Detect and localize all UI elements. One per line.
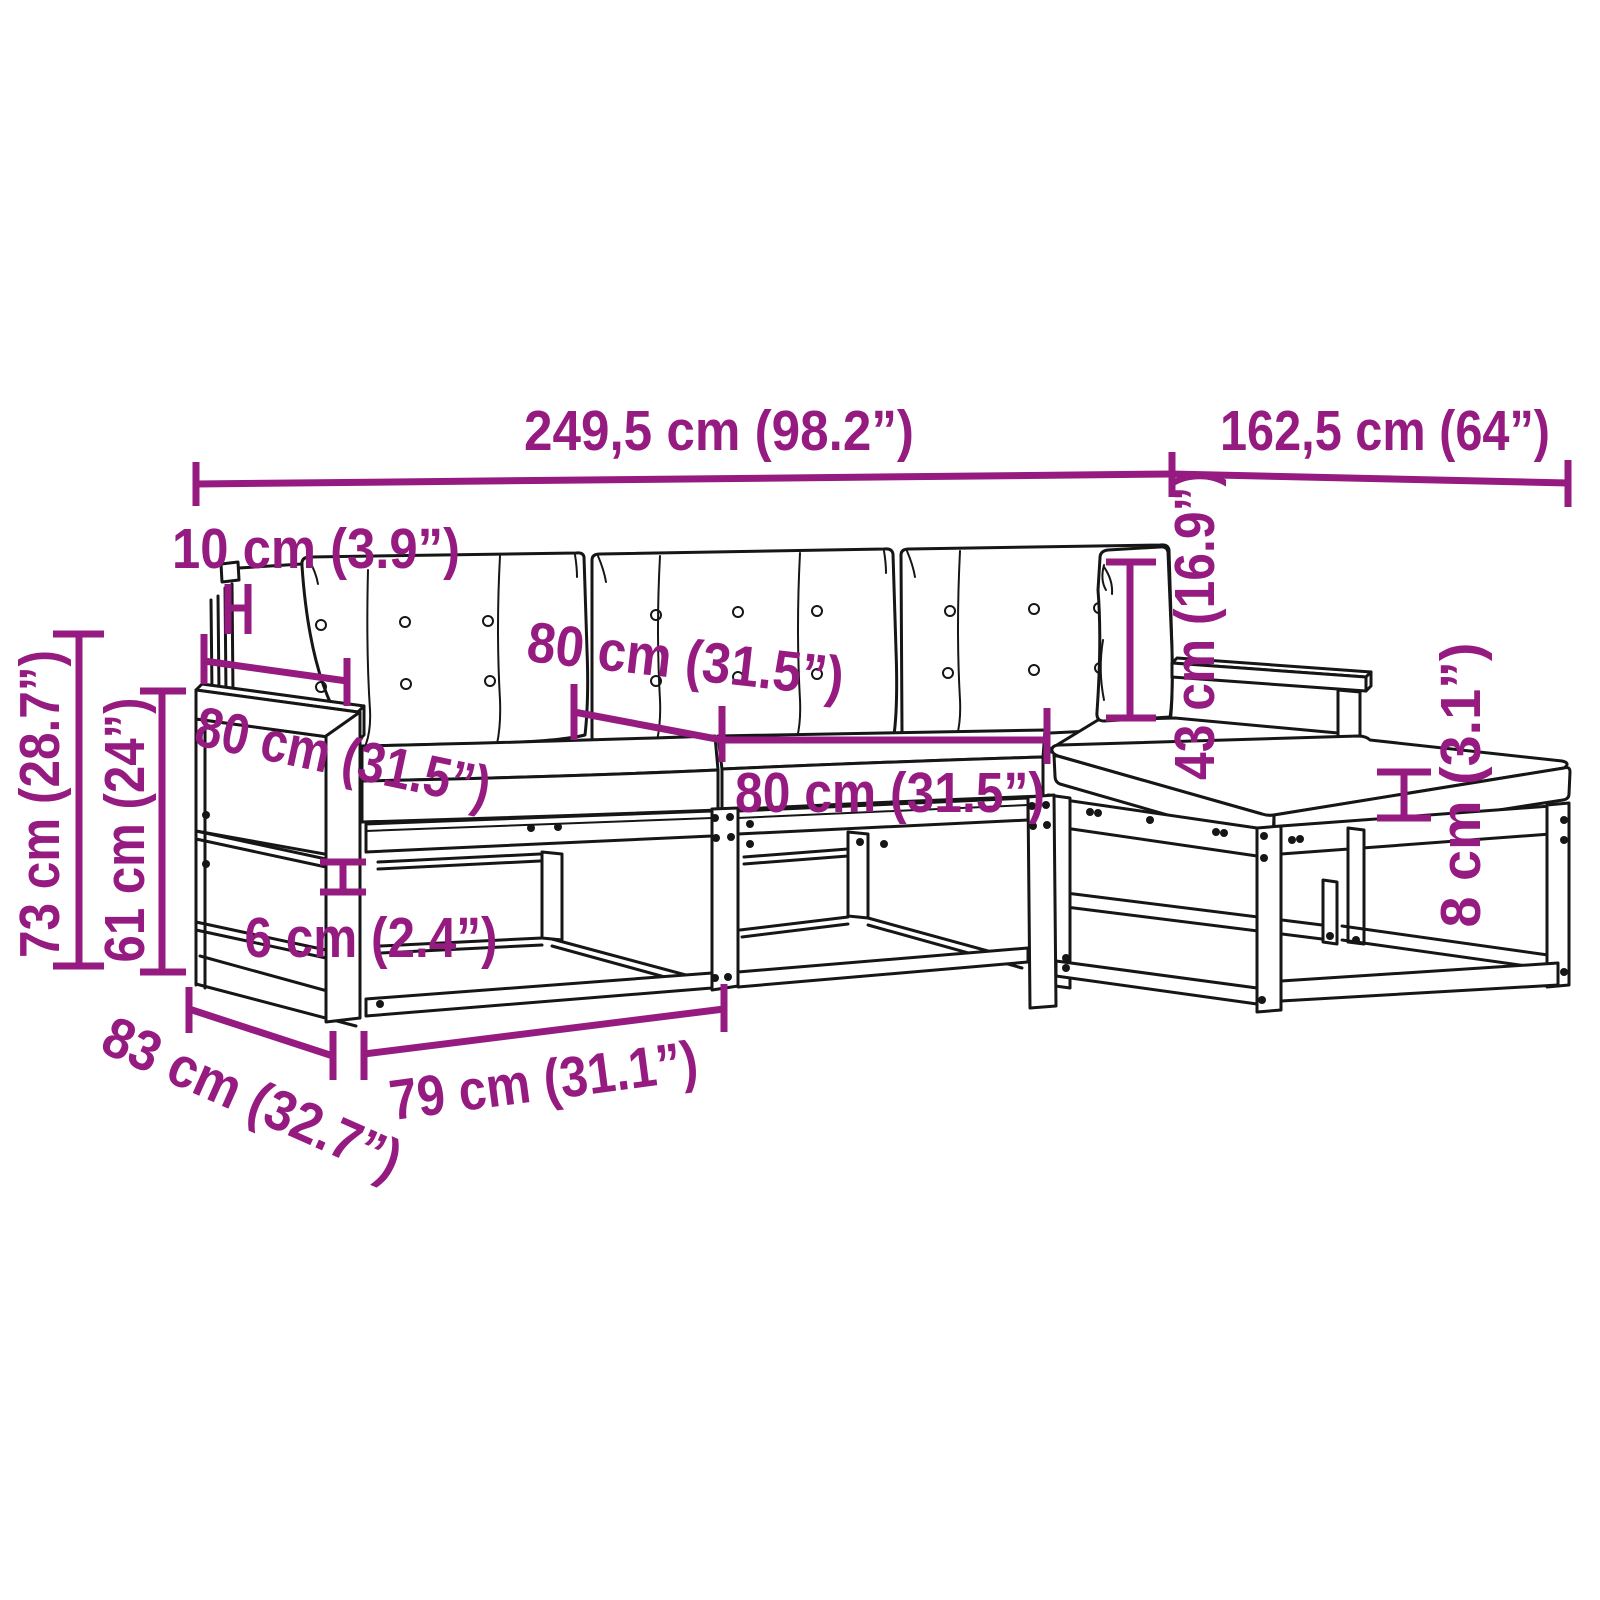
svg-text:249,5 cm (98.2”): 249,5 cm (98.2”) xyxy=(524,399,914,463)
svg-text:80 cm (31.5”): 80 cm (31.5”) xyxy=(735,761,1045,825)
svg-text:8 cm (3.1”): 8 cm (3.1”) xyxy=(1429,643,1493,928)
svg-text:61 cm (24”): 61 cm (24”) xyxy=(93,698,157,963)
svg-text:10 cm (3.9”): 10 cm (3.9”) xyxy=(172,517,460,581)
svg-text:73 cm (28.7”): 73 cm (28.7”) xyxy=(8,650,72,958)
svg-text:6 cm (2.4”): 6 cm (2.4”) xyxy=(245,906,498,970)
svg-text:43 cm (16.9”): 43 cm (16.9”) xyxy=(1163,470,1227,780)
svg-text:162,5 cm (64”): 162,5 cm (64”) xyxy=(1220,399,1550,463)
